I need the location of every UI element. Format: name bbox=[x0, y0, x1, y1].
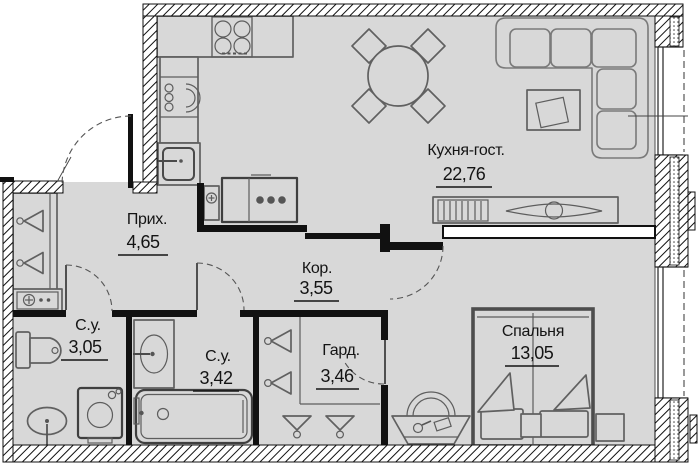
entrance-door bbox=[62, 114, 133, 188]
floor-plan: Кухня-гост. 22,76 Прих. 4,65 Кор. 3,55 С… bbox=[0, 0, 700, 464]
window bbox=[655, 267, 688, 398]
wall-bottom bbox=[3, 445, 688, 462]
kitchen-sink-icon bbox=[157, 143, 200, 185]
room-name: Кор. bbox=[302, 260, 332, 277]
blanket bbox=[540, 411, 588, 437]
washing-machine-icon bbox=[78, 388, 122, 443]
room-name: Гард. bbox=[322, 342, 359, 359]
room-area: 4,65 bbox=[126, 232, 160, 252]
room-area: 3,55 bbox=[299, 278, 333, 298]
nightstand bbox=[596, 414, 624, 441]
wall-kitchen-divider bbox=[143, 16, 157, 182]
floor-plan-canvas: Кухня-гост. 22,76 Прих. 4,65 Кор. 3,55 С… bbox=[0, 0, 700, 464]
blanket bbox=[521, 414, 541, 437]
room-area: 13,05 bbox=[511, 343, 554, 363]
window bbox=[655, 47, 684, 155]
bathtub-icon bbox=[134, 390, 252, 443]
wall-top bbox=[143, 4, 683, 16]
dining-table bbox=[368, 46, 428, 106]
room-area: 22,76 bbox=[443, 164, 486, 184]
room-name: С.у. bbox=[205, 348, 231, 365]
room-name: С.у. bbox=[75, 317, 101, 334]
room-area: 3,05 bbox=[68, 337, 102, 357]
room-area: 3,46 bbox=[320, 366, 354, 386]
coffee-table bbox=[527, 90, 580, 130]
room-area: 3,42 bbox=[199, 368, 233, 388]
wall-entrance-side bbox=[13, 181, 63, 193]
washbasin-icon bbox=[133, 320, 174, 388]
tv-stand bbox=[433, 197, 618, 223]
room-name: Прих. bbox=[127, 211, 167, 228]
room-label-wardrobe: Гард. 3,46 bbox=[316, 342, 360, 389]
room-name: Спальня bbox=[502, 323, 564, 340]
wall-left bbox=[3, 181, 13, 462]
shoe-shelf bbox=[13, 289, 62, 312]
blanket bbox=[481, 409, 523, 439]
entry-closet bbox=[13, 193, 62, 312]
room-name: Кухня-гост. bbox=[427, 142, 504, 159]
